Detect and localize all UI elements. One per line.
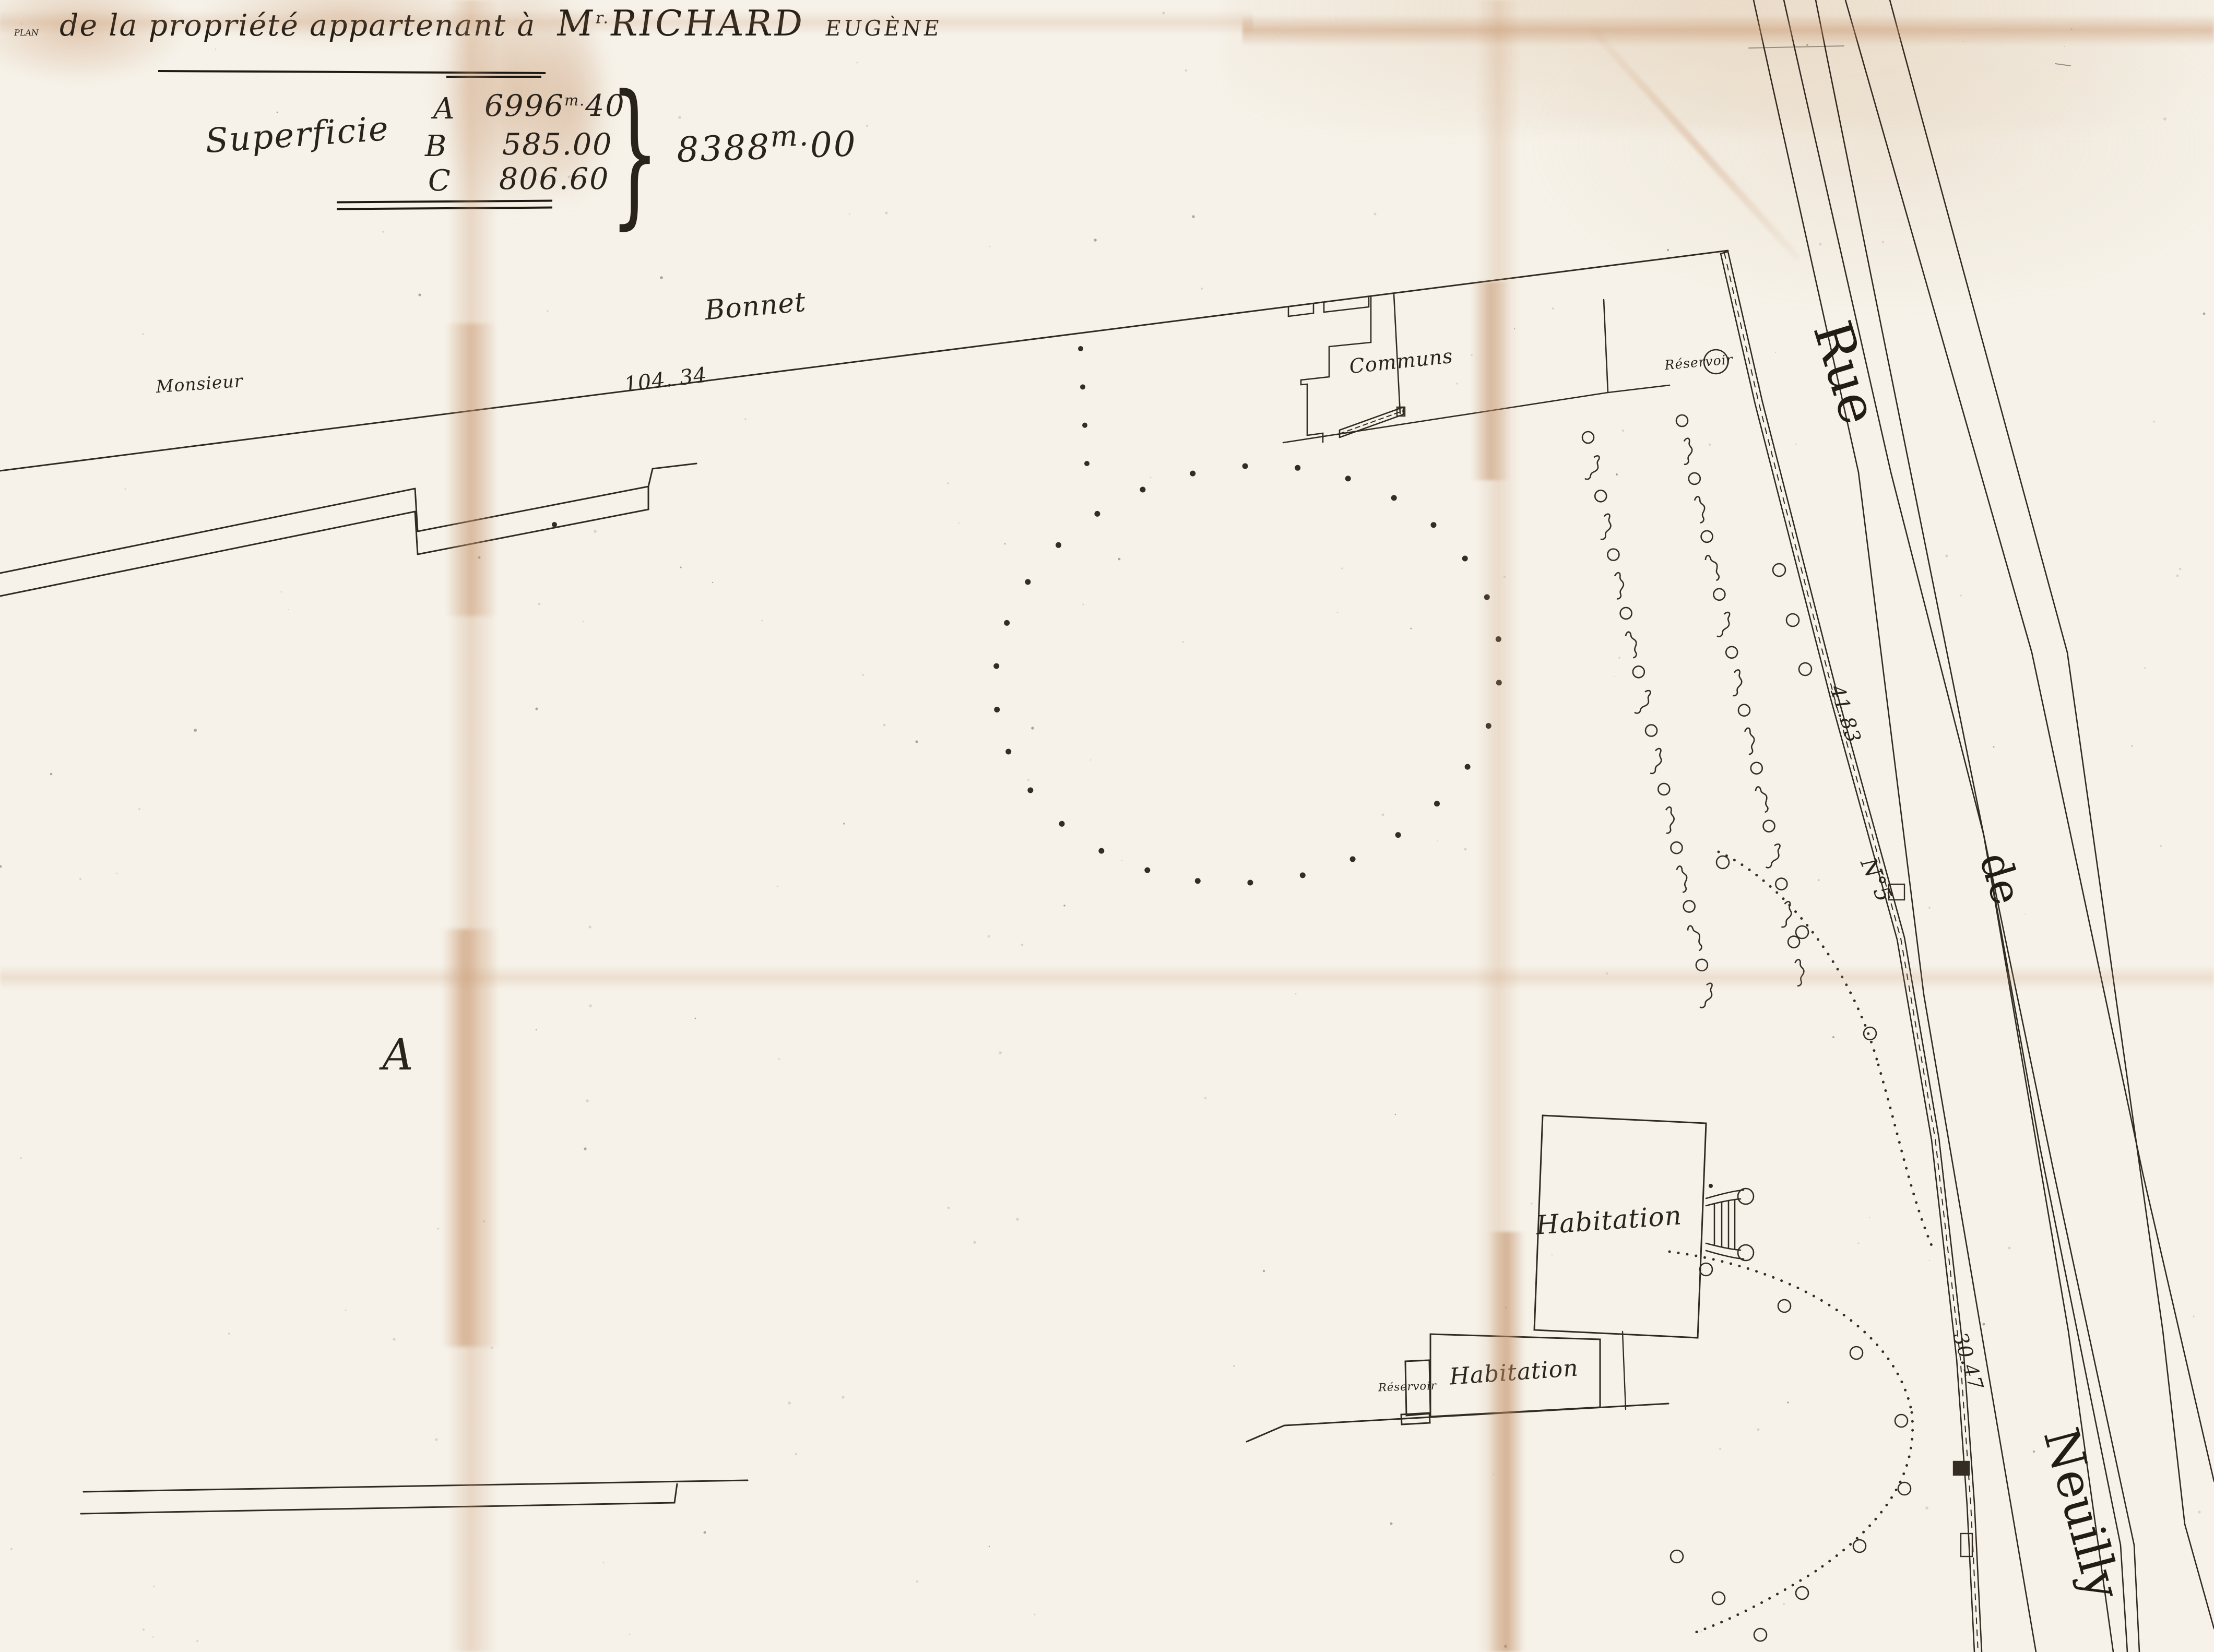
title-owner-firstname: EUGÈNE	[824, 16, 944, 41]
shrub-squiggle-icon	[1717, 611, 1733, 638]
tree-circle-icon	[1778, 1300, 1791, 1312]
speckle	[2153, 421, 2155, 423]
tree-circle-icon	[1689, 473, 1700, 484]
speckle	[1263, 1270, 1265, 1272]
shrub-squiggle-icon	[1686, 924, 1706, 950]
tree-circle-icon	[1895, 1415, 1908, 1427]
shrub-squiggle-icon	[1650, 748, 1664, 775]
speckle	[1709, 444, 1711, 446]
speckle	[2198, 1511, 2200, 1513]
speckle	[988, 935, 990, 938]
speckle	[680, 566, 681, 568]
tree-dot	[1465, 764, 1471, 770]
superficie-value-a: 6996m.40	[484, 89, 625, 123]
tree-dot	[1395, 832, 1401, 838]
speckle	[584, 1147, 586, 1150]
yard-right-edge	[1604, 300, 1608, 393]
speckle	[1121, 860, 1122, 861]
speckle	[583, 621, 584, 623]
speckle	[20, 1157, 22, 1159]
tree-circle-icon	[1645, 725, 1657, 736]
speckle	[1374, 213, 1377, 216]
tree-circle-icon	[1796, 926, 1808, 938]
speckle	[973, 1241, 976, 1244]
speckle	[547, 310, 548, 312]
speckle	[478, 556, 481, 559]
speckle	[1493, 1474, 1494, 1475]
speckle	[2193, 1315, 2194, 1317]
speckle	[1618, 657, 1620, 659]
speckle	[1505, 1306, 1507, 1309]
speckle	[1606, 972, 1608, 974]
tree-dot	[1496, 680, 1502, 685]
tree-dot	[1484, 595, 1490, 600]
shrub-squiggle-icon	[1635, 689, 1653, 716]
habitation-stair	[1706, 1184, 1754, 1261]
tree-circle-icon	[1696, 959, 1708, 971]
speckle	[1897, 933, 1899, 935]
speckle	[1983, 1323, 1985, 1326]
speckle	[1616, 473, 1618, 476]
tree-dot	[1144, 867, 1150, 873]
tree-dot	[1059, 821, 1065, 827]
speckle	[1337, 612, 1339, 613]
speckle	[1182, 641, 1184, 643]
tree-circle-icon	[1799, 663, 1812, 675]
speckle	[849, 213, 850, 215]
speckle	[281, 591, 282, 593]
tree-row-2	[1676, 415, 1805, 986]
tree-dot	[1434, 801, 1440, 806]
title-underline-2	[446, 76, 541, 78]
tree-dot	[1462, 556, 1468, 562]
tree-row-1	[1582, 432, 1715, 1009]
speckle	[704, 1531, 706, 1534]
scanned-property-plan: { "title": { "plan": "PLAN", "phrase": "…	[0, 0, 2214, 1652]
speckle	[1504, 1645, 1507, 1648]
speckle	[437, 1228, 439, 1229]
tree-circle-icon	[1607, 549, 1619, 561]
tree-circle-icon	[1754, 1629, 1767, 1641]
shrub-squiggle-icon	[1766, 843, 1783, 870]
tree-circle-icon	[1773, 564, 1785, 576]
tree-dot	[1084, 461, 1090, 466]
speckle	[1150, 477, 1152, 479]
street-line-3	[1816, 0, 2127, 1652]
speckle	[393, 1338, 395, 1340]
hedge-dotted-arc-1	[1719, 852, 1878, 1065]
speckle	[843, 823, 845, 824]
speckle	[50, 773, 53, 776]
speckle	[660, 276, 663, 279]
shrub-squiggle-icon	[1585, 455, 1603, 482]
tree-dot	[993, 663, 999, 669]
communs-buildings-outline	[1283, 294, 1670, 443]
speckle	[382, 231, 384, 233]
speckle	[999, 1051, 1002, 1054]
speckle	[1614, 676, 1615, 677]
tree-dot	[1190, 471, 1195, 477]
tree-dot	[1080, 384, 1085, 389]
speckle	[1514, 328, 1515, 329]
speckle	[538, 603, 541, 605]
speckle	[1341, 567, 1343, 569]
shrub-squiggle-icon	[1694, 495, 1708, 522]
tree-circle-icon	[1671, 842, 1682, 853]
tree-dot	[1195, 878, 1201, 884]
tree-circle-icon	[1898, 1482, 1911, 1495]
superficie-value-b: 585.00	[502, 127, 612, 162]
tree-dot	[1005, 749, 1011, 755]
speckle	[2163, 117, 2166, 121]
boundary-line-communs-bottom	[1283, 385, 1670, 443]
speckle	[2131, 745, 2133, 747]
speckle	[586, 1099, 589, 1102]
speckle	[915, 740, 918, 743]
speckle	[1758, 384, 1760, 386]
speckle	[2144, 667, 2146, 669]
speckle	[1622, 430, 1624, 432]
shrub-squiggle-icon	[1666, 807, 1674, 833]
speckle	[435, 1438, 437, 1441]
speckle	[536, 1029, 537, 1030]
speckle	[1233, 1365, 1235, 1367]
superficie-value-c: 806.60	[499, 162, 609, 196]
speckle	[1201, 288, 1203, 290]
speckle	[0, 865, 2, 868]
speckle	[491, 1347, 493, 1349]
speckle	[1929, 1260, 1930, 1261]
tree-circle-icon	[1751, 763, 1762, 774]
speckle	[1795, 444, 1797, 445]
speckle	[948, 1207, 950, 1209]
bottom-left-boundary	[81, 1480, 748, 1514]
speckle	[277, 112, 278, 113]
speckle	[153, 1586, 155, 1587]
shrub-squiggle-icon	[1744, 727, 1757, 754]
superficie-letter-b: B	[425, 129, 446, 163]
speckle	[589, 1004, 592, 1007]
speckle	[194, 729, 197, 732]
speckle	[1945, 554, 1948, 557]
tree-circle-icon	[1788, 936, 1799, 948]
tree-circle-icon	[1712, 1592, 1725, 1605]
tree-dot	[1094, 511, 1100, 517]
speckle	[215, 49, 217, 50]
speckle	[1295, 993, 1297, 995]
tree-circle-icon	[1763, 821, 1775, 832]
speckle	[1757, 1429, 1760, 1431]
speckle	[1928, 907, 1931, 909]
speckle	[1819, 243, 1822, 246]
speckle	[1806, 44, 1808, 46]
speckle	[2064, 46, 2065, 47]
speckle	[2008, 1246, 2010, 1249]
speckle	[588, 925, 591, 928]
tree-circle-icon	[1853, 1540, 1866, 1552]
speckle	[288, 609, 289, 610]
title-plan-word: PLAN	[14, 28, 40, 38]
shrub-squiggle-icon	[1704, 554, 1723, 580]
speckle	[842, 1396, 844, 1398]
speckle	[2160, 845, 2162, 847]
tree-circle-icon	[1796, 1587, 1808, 1599]
tree-dot	[1350, 857, 1356, 862]
speckle	[1090, 759, 1091, 760]
speckle	[2033, 1451, 2035, 1453]
speckle	[1192, 215, 1194, 218]
speckle	[1185, 69, 1188, 72]
speckle	[1552, 1254, 1553, 1255]
tree-dot	[1242, 463, 1248, 469]
tree-dot	[1025, 579, 1031, 585]
speckle	[629, 1634, 631, 1635]
tree-dot	[1098, 848, 1104, 854]
speckle	[1832, 1036, 1834, 1038]
speckle	[1857, 1242, 1859, 1244]
scattered-trees	[1671, 564, 1911, 1641]
tree-circle-icon	[1700, 1263, 1712, 1276]
tree-dot	[1027, 788, 1033, 793]
speckle	[778, 1058, 779, 1060]
tree-dot	[1345, 476, 1351, 481]
tree-dot	[994, 707, 1000, 712]
speckle	[1818, 880, 1820, 881]
speckle	[1395, 1114, 1396, 1115]
speckle	[1094, 239, 1097, 242]
speckle	[947, 482, 949, 484]
speckle	[788, 1401, 791, 1405]
tree-circle-icon	[1716, 856, 1729, 869]
speckle	[345, 1310, 347, 1311]
shrub-squiggle-icon	[1781, 901, 1793, 928]
tree-circle-icon	[1713, 589, 1725, 600]
speckle	[762, 620, 763, 622]
tree-dot	[552, 522, 557, 527]
speckle	[1503, 576, 1506, 578]
street-lines	[1754, 0, 2214, 1652]
speckle	[1034, 1613, 1035, 1615]
speckle	[1775, 352, 1776, 353]
title-phrase: de la propriété appartenant à	[60, 8, 536, 43]
speckle	[1960, 595, 1961, 596]
speckle	[1963, 41, 1964, 42]
street-line-5	[1890, 0, 2214, 1629]
tree-circle-icon	[1684, 901, 1695, 912]
speckle	[116, 873, 118, 874]
tree-circle-icon	[1864, 1027, 1876, 1040]
speckle	[885, 211, 887, 214]
speckle	[1381, 813, 1384, 816]
speckle	[795, 1453, 797, 1455]
speckle	[1411, 628, 1412, 629]
tree-circle-icon	[1786, 614, 1799, 626]
fence-gate-3	[1961, 1534, 1972, 1556]
tree-circle-icon	[1633, 666, 1644, 678]
speckle	[857, 62, 858, 64]
neighbor-wall-strip	[0, 463, 696, 596]
speckle	[678, 116, 681, 119]
street-line-4	[1845, 0, 2214, 1481]
plan-line-drawing	[0, 0, 2214, 1652]
tree-dot	[1486, 723, 1491, 729]
shrub-squiggle-icon	[1615, 572, 1625, 599]
superficie-total: 8388m.00	[676, 117, 858, 170]
speckle	[1021, 944, 1024, 946]
speckle	[862, 674, 864, 676]
tree-circle-icon	[1850, 1347, 1863, 1359]
street-line-2	[1784, 0, 2113, 1652]
speckle	[1204, 1097, 1206, 1099]
speckle	[1552, 307, 1554, 310]
speckle	[883, 724, 886, 727]
speckle	[1063, 905, 1065, 907]
speckle	[125, 489, 126, 490]
tree-dot-oval	[993, 463, 1502, 886]
speckle	[1925, 1506, 1928, 1510]
vegetation-layer	[552, 346, 1972, 1641]
tree-dot	[1300, 872, 1306, 878]
speckle	[1667, 249, 1669, 251]
tree-circle-icon	[1671, 1550, 1683, 1563]
speckle	[1719, 1448, 1721, 1450]
speckle	[866, 125, 868, 127]
tree-circle-icon	[1775, 878, 1787, 890]
shrub-squiggle-icon	[1733, 670, 1743, 696]
speckle	[2024, 913, 2026, 914]
speckle	[1464, 848, 1466, 850]
speckle	[695, 1018, 696, 1019]
speckle	[712, 582, 713, 583]
speckle	[1456, 383, 1458, 385]
superficie-brace: }	[610, 62, 659, 244]
speckle	[1031, 727, 1034, 730]
speckle	[418, 293, 421, 296]
tree-dot	[1295, 465, 1300, 471]
shrub-squiggle-icon	[1754, 785, 1772, 812]
speckle	[1162, 11, 1165, 14]
speckle	[483, 1220, 486, 1223]
speckle	[603, 1562, 605, 1564]
superficie-letter-c: C	[428, 164, 451, 198]
superficie-letter-a: A	[433, 92, 454, 126]
speckle	[1118, 558, 1121, 561]
faint-marks	[1749, 46, 2070, 66]
speckle	[152, 1636, 154, 1638]
shrub-squiggle-icon	[1795, 959, 1805, 986]
speckle	[1471, 354, 1473, 356]
speckle	[777, 886, 778, 887]
reservoir-small-label: Réservoir	[1378, 1381, 1437, 1394]
hedge-dotted-arc-5	[1691, 1571, 1816, 1634]
tree-dot	[1004, 620, 1010, 626]
title-owner-name: Mr.RICHARD	[554, 3, 808, 44]
shrub-squiggle-icon	[1601, 514, 1613, 541]
speckle	[916, 1580, 918, 1583]
speckle	[138, 808, 140, 810]
speckle	[594, 530, 597, 533]
speckle	[989, 246, 991, 247]
speckle	[79, 878, 81, 880]
tree-dot	[1078, 346, 1083, 351]
speckle	[1082, 603, 1084, 605]
tree-dot	[1140, 487, 1145, 493]
shrub-squiggle-icon	[1700, 982, 1715, 1009]
street-line-1	[1754, 0, 2036, 1652]
plan-title: PLAN de la propriété appartenant à Mr.RI…	[14, 3, 942, 44]
tree-dot	[1496, 636, 1501, 642]
speckle	[1869, 1217, 1870, 1218]
neighbor-name-bonnet: Bonnet	[704, 289, 807, 325]
tree-dot	[1247, 880, 1253, 886]
speckle	[142, 333, 144, 335]
speckle	[2176, 575, 2179, 577]
speckle	[535, 707, 538, 710]
speckle	[989, 1546, 990, 1548]
boundary-line-upper	[0, 251, 1728, 471]
tree-dot	[1431, 522, 1437, 528]
speckle	[1700, 1631, 1702, 1632]
speckle	[1016, 1218, 1019, 1221]
shrub-squiggle-icon	[1625, 631, 1641, 658]
tree-circle-icon	[1738, 705, 1750, 716]
parcel-a-label: A	[382, 1034, 413, 1077]
road-fence	[1721, 252, 1982, 1652]
speckle	[1531, 1203, 1532, 1204]
tree-circle-icon	[1726, 647, 1737, 658]
speckle	[1882, 241, 1884, 243]
speckle	[2179, 568, 2182, 571]
speckle	[1787, 1401, 1789, 1403]
speckle	[744, 418, 747, 420]
tree-circle-icon	[1595, 490, 1606, 502]
speckle	[10, 1548, 13, 1550]
speckle	[143, 1629, 145, 1631]
fence-gate-2	[1953, 1461, 1969, 1475]
speckle	[1437, 840, 1438, 841]
tree-circle-icon	[1701, 531, 1713, 542]
speckle	[2203, 313, 2206, 315]
tree-circle-icon	[1676, 415, 1688, 426]
speckle	[958, 522, 960, 524]
speckle	[1993, 746, 1995, 748]
hedge-dotted-arc-4	[1816, 1412, 1913, 1571]
boundary-line-lower	[1247, 1404, 1668, 1442]
shrub-squiggle-icon	[1684, 438, 1692, 465]
dot-line-2	[552, 522, 557, 527]
speckle	[196, 1640, 198, 1642]
speckle	[1027, 779, 1029, 781]
tree-dot	[1391, 495, 1397, 501]
tree-dot	[1056, 542, 1061, 548]
tree-circle-icon	[1620, 608, 1632, 619]
speckle	[1390, 1523, 1393, 1525]
tree-circle-icon	[1658, 783, 1670, 795]
speckle	[1783, 1603, 1785, 1605]
tree-circle-icon	[1582, 432, 1594, 443]
dot-line-1	[1078, 346, 1090, 466]
tree-dot	[1082, 423, 1087, 428]
speckle	[1004, 543, 1006, 545]
speckle	[228, 1333, 230, 1335]
shrub-squiggle-icon	[1676, 865, 1690, 892]
speckle	[2070, 28, 2073, 30]
